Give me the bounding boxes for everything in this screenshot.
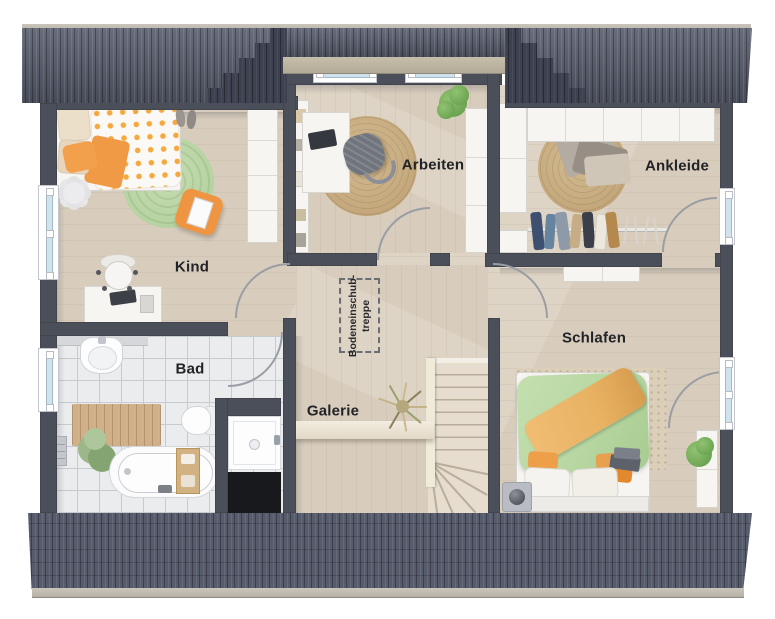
clothes-item <box>584 153 631 187</box>
wall-right-exterior <box>720 98 733 513</box>
plant-foliage <box>449 85 469 105</box>
wardrobe-seam <box>248 210 277 211</box>
wall-kind-bad <box>40 322 228 336</box>
chair-leg <box>127 286 132 291</box>
toilet <box>181 405 217 435</box>
towel <box>84 428 106 450</box>
hanging-clothes <box>569 214 582 249</box>
stairwell <box>428 358 490 513</box>
bathtub-drain <box>124 468 131 475</box>
wall-left-exterior <box>40 103 57 513</box>
wardrobe-kind <box>247 104 278 243</box>
clothes-rail <box>528 211 670 253</box>
window-glass <box>725 193 732 240</box>
window-handle <box>46 230 54 238</box>
cabinet-arbeiten <box>465 108 488 253</box>
dormer-eave-arbeiten <box>283 57 505 74</box>
wardrobe-seam <box>248 175 277 176</box>
attic-hatch-outline: Bodeneinschub- treppe <box>339 278 380 353</box>
shower-drain <box>249 439 260 450</box>
speaker-sphere <box>509 489 525 505</box>
window-handle <box>725 191 733 199</box>
speaker-box <box>502 482 532 512</box>
attic-hatch-label-line1: Bodeneinschub- <box>347 274 360 356</box>
wall-hall-b <box>430 253 450 266</box>
bathtub <box>109 446 219 498</box>
attic-hatch-label-line2: treppe <box>360 274 373 356</box>
chair-leg <box>133 270 138 275</box>
stair-top-edge <box>428 358 490 363</box>
plant-foliage <box>437 101 455 119</box>
radiator-fin <box>56 444 65 445</box>
wall-schlafen-left <box>488 318 500 513</box>
caddy-item <box>181 475 195 487</box>
window-kind-left <box>38 185 59 280</box>
hanging-clothes <box>530 212 545 251</box>
window-handle <box>46 272 54 280</box>
window-handle <box>46 351 54 359</box>
window-handle <box>725 360 733 368</box>
window-handle <box>46 404 54 412</box>
flower-center <box>396 400 409 413</box>
desk-chair-kind <box>96 254 138 292</box>
hanging-clothes <box>605 211 620 248</box>
stair-treads-straight <box>428 363 490 461</box>
wardrobe-ankleide-top <box>527 103 715 142</box>
window-schlafen-right <box>719 357 735 430</box>
window-ankleide-right <box>719 188 735 245</box>
label-bad: Bad <box>176 361 205 378</box>
sink-basin <box>88 346 117 370</box>
wardrobe-seam <box>679 104 680 141</box>
toilet-bowl <box>181 406 211 435</box>
plant-foliage <box>696 437 714 455</box>
bathtub-faucet <box>158 485 172 493</box>
label-galerie: Galerie <box>307 403 359 420</box>
chair-leg <box>102 286 107 291</box>
radiator-fin <box>56 458 65 459</box>
flower-side-table <box>63 182 85 204</box>
wall-arbeiten-right <box>487 72 500 265</box>
cabinet-seam <box>466 157 487 158</box>
window-handle <box>725 391 733 399</box>
books-on-bed <box>614 447 641 460</box>
wall-ankleide-bottom <box>485 253 662 267</box>
plant-schlafen <box>684 437 716 471</box>
radiator-fin <box>56 451 65 452</box>
window-handle <box>725 237 733 245</box>
label-kind: Kind <box>175 259 209 276</box>
roof-top-dormer-arbeiten <box>287 28 505 57</box>
window-handle <box>725 422 733 430</box>
window-glass <box>46 353 53 407</box>
wall-hall-a <box>287 253 377 266</box>
roof-eave-bottom <box>32 588 744 598</box>
wardrobe-seam <box>603 104 604 141</box>
cabinet-seam <box>466 205 487 206</box>
label-arbeiten: Arbeiten <box>402 157 464 174</box>
caddy-item <box>181 454 195 464</box>
desk-item <box>140 295 154 313</box>
bath-caddy <box>176 448 200 494</box>
pillow-kind <box>57 106 92 143</box>
cabinet-ankleide-low <box>497 230 528 253</box>
label-schlafen: Schlafen <box>562 330 626 347</box>
roof-bottom <box>28 513 752 589</box>
window-bad-left <box>38 348 59 412</box>
window-handle <box>46 188 54 196</box>
shower-head <box>274 435 280 445</box>
label-ankleide: Ankleide <box>645 158 709 175</box>
sink-faucet <box>98 336 106 344</box>
attic-hatch-label: Bodeneinschub- treppe <box>347 274 373 356</box>
wall-bad-right <box>283 318 296 513</box>
wall-shower-horizontal <box>227 398 281 416</box>
wardrobe-seam <box>248 140 277 141</box>
dried-flower-arrangement <box>374 378 432 436</box>
chair-leg <box>96 270 101 275</box>
shower-tray <box>228 416 281 470</box>
wardrobe-seam <box>565 104 566 141</box>
headboard-schlafen <box>518 496 649 512</box>
wardrobe-seam <box>641 104 642 141</box>
floor-plan: Bodeneinschub- treppe <box>0 0 775 619</box>
sink <box>80 337 123 374</box>
